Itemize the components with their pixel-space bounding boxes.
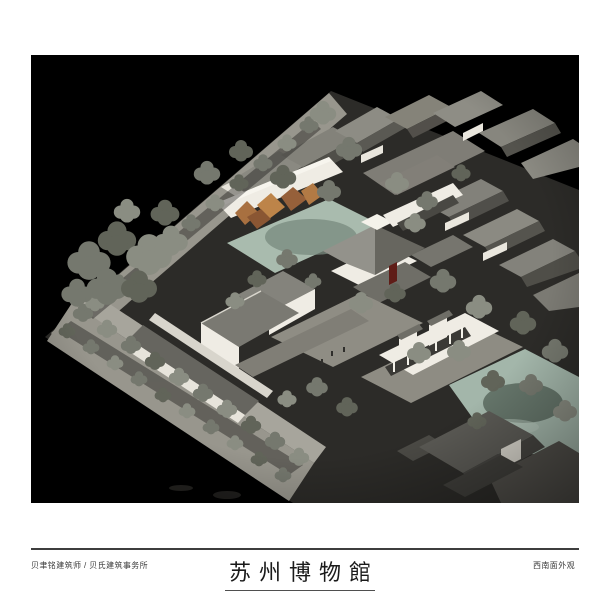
divider-line [31,548,579,550]
model-photo [31,55,579,503]
page-title: 苏州博物館 [0,560,600,588]
caption-view: 西南面外观 [533,560,575,571]
title-block: 苏州博物館 [0,560,600,591]
vignette-overlay [31,55,579,503]
model-photo-scene [31,55,579,503]
title-underline [225,590,375,591]
